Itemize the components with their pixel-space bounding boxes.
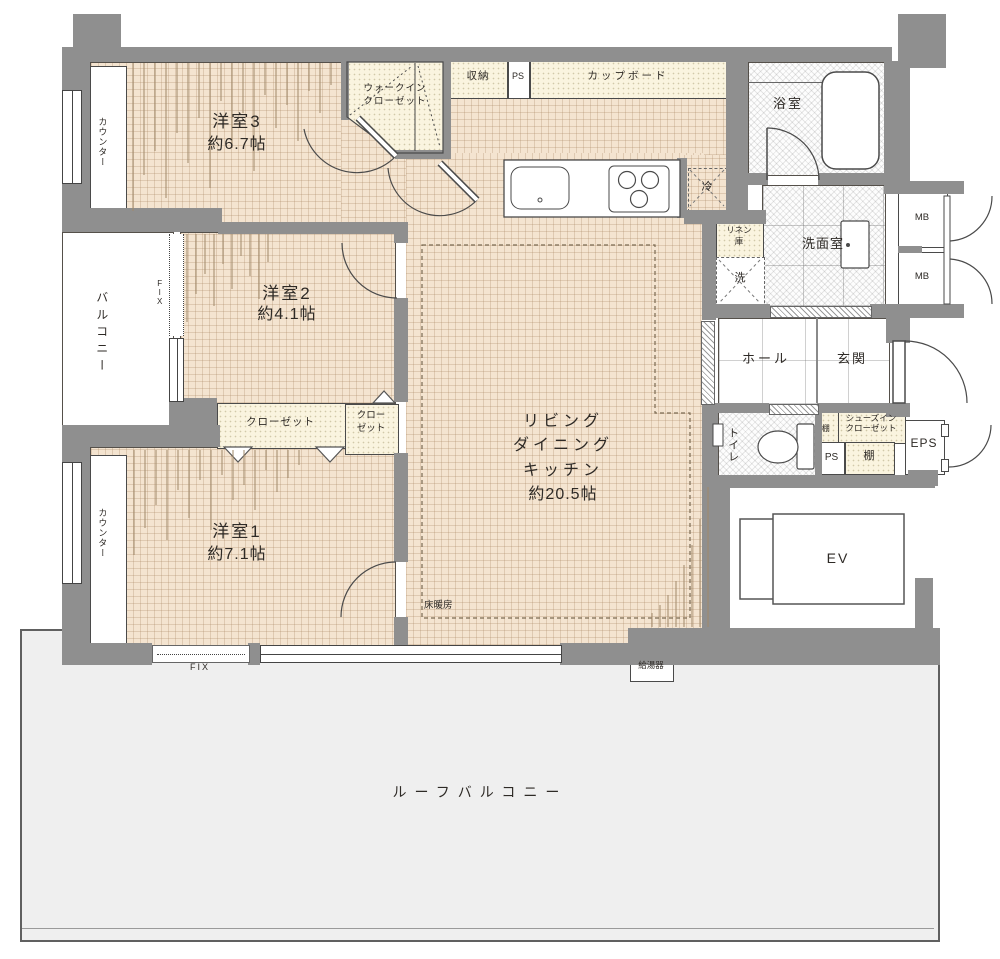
bedroom3-size: 約6.7帖 (148, 136, 326, 154)
linen-label-line1: リネン (717, 226, 761, 236)
storage-label: 収納 (450, 70, 506, 82)
sliding-door-hall-ldk (701, 321, 715, 405)
eps-tab-top (941, 424, 949, 437)
ldk-label-line3: キッチン (468, 462, 658, 480)
wall (218, 222, 408, 234)
ldk-label-line1: リビング (468, 413, 658, 431)
wall (62, 208, 222, 232)
ldk-upper-floor (406, 153, 704, 223)
door-entrance (893, 341, 967, 403)
balcony-fix-label: FIX (155, 268, 164, 316)
door-arc-eps (949, 425, 991, 467)
sliding-door-washroom (770, 306, 872, 318)
entrance-step-line (816, 318, 818, 403)
bedroom2-size: 約4.1帖 (198, 306, 376, 324)
window-bedroom3-left (62, 90, 82, 184)
bedroom1-label: 洋室1 (148, 522, 326, 542)
wic-label-line2: クローゼット (349, 97, 441, 108)
washer-label: 洗 (727, 272, 753, 285)
bathroom-ledge-line (748, 82, 822, 83)
wall (884, 181, 964, 194)
wall (62, 47, 892, 62)
wall (884, 61, 910, 182)
roof-balcony-label: ルーフバルコニー (350, 784, 610, 800)
closet-small-line2: ゼット (346, 424, 396, 435)
wall (704, 304, 770, 318)
bathroom-floor (748, 62, 886, 176)
ldk-kitchen-floor (443, 97, 726, 155)
entrance-label: 玄関 (820, 352, 884, 367)
wall (818, 173, 884, 185)
bedroom2-label: 洋室2 (198, 284, 376, 304)
wall (870, 304, 890, 318)
bedroom3-label: 洋室3 (148, 112, 326, 132)
bathroom-label: 浴室 (748, 97, 828, 112)
balcony-label: バルコニー (94, 278, 108, 388)
ldk-label-line2: ダイニング (468, 437, 658, 455)
ldk-main-floor (406, 222, 702, 645)
floor-plan: 洋室3 約6.7帖 ウォークイン クローゼット 収納 PS カップボード 浴室 … (0, 0, 1000, 959)
window-bedroom2-left (169, 338, 184, 402)
mb-upper-label: MB (898, 213, 946, 224)
wall (684, 210, 766, 224)
window-ldk-bottom (260, 645, 562, 663)
shoes-closet-line2: クローゼット (838, 424, 904, 434)
water-heater-label: 給湯器 (631, 661, 671, 671)
wall (341, 62, 349, 120)
closet-small-line1: クロー (346, 411, 396, 422)
wic-label-line1: ウォークイン (349, 84, 441, 95)
wall (702, 412, 718, 475)
wall (628, 628, 940, 665)
counter-bottom-label: カウンター (97, 488, 107, 578)
closet-wide-label: クローゼット (219, 416, 342, 428)
eps-tab-bottom (941, 459, 949, 472)
wall (62, 643, 152, 665)
counter-strip-bedroom1 (90, 455, 127, 645)
wall (908, 470, 938, 486)
cupboard-label: カップボード (530, 70, 726, 82)
shelf-lower-label: 棚 (845, 450, 893, 463)
window-bedroom1-left (62, 462, 82, 584)
wall (677, 158, 687, 218)
fix-bottom-label: FIX (170, 662, 230, 672)
wall (726, 60, 748, 223)
toilet-label: トイレ (726, 417, 739, 473)
hall-label: ホール (720, 352, 812, 367)
wall (817, 403, 910, 413)
fix-window-balcony (169, 234, 184, 336)
ldk-size: 約20.5帖 (468, 486, 658, 504)
counter-strip-bedroom3 (90, 66, 127, 210)
wall (898, 246, 922, 253)
roof-balcony-rail-line (22, 928, 934, 929)
wall (394, 222, 408, 243)
wall (394, 453, 408, 562)
wall (884, 304, 964, 318)
balcony-floor (62, 232, 174, 428)
mb-lower-label: MB (898, 272, 946, 283)
wall (886, 318, 910, 343)
roof-balcony-top-edge (20, 629, 64, 631)
wall (62, 425, 220, 447)
sliding-door-toilet (769, 404, 819, 415)
ps-lower-label: PS (820, 452, 843, 464)
wall (898, 14, 946, 68)
door-mb (944, 196, 992, 304)
wall (702, 475, 935, 488)
wall (394, 617, 408, 645)
shelf-vertical-label: 棚 (821, 415, 830, 441)
wall (394, 298, 408, 402)
linen-label-line2: 庫 (717, 237, 761, 247)
wall (915, 578, 933, 632)
wall (73, 14, 121, 48)
floor-heating-label: 床暖房 (424, 601, 476, 612)
ps-top-label: PS (508, 71, 528, 81)
ev-label: EV (808, 550, 868, 566)
wall (748, 173, 768, 185)
wall (395, 150, 447, 159)
washroom-label: 洗面室 (766, 237, 880, 252)
counter-top-label: カウンター (97, 97, 107, 187)
fix-window-bottom (152, 645, 250, 663)
fridge-label: 冷 (692, 181, 722, 194)
bedroom1-size: 約7.1帖 (148, 546, 326, 564)
eps-label: EPS (905, 437, 943, 451)
